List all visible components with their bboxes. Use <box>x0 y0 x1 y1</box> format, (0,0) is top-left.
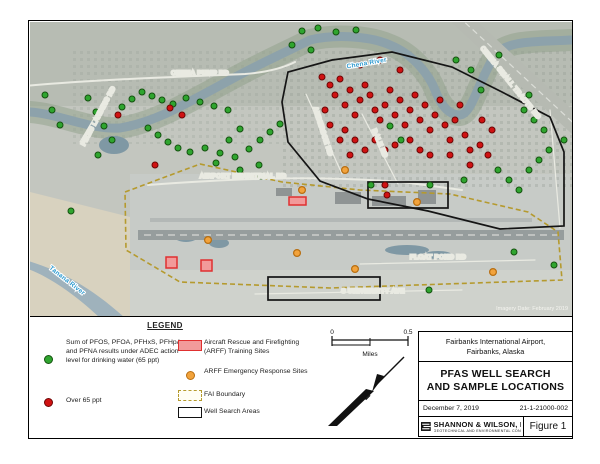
sample-under-level-marker <box>175 145 181 151</box>
map-label-road: CHENA PUMP RD <box>171 70 229 77</box>
sample-over-level-marker <box>377 117 383 123</box>
sample-over-level-marker <box>417 147 423 153</box>
north-arrow: N <box>322 352 410 432</box>
sample-under-level-marker <box>536 157 542 163</box>
well-search-swatch-icon <box>178 406 204 418</box>
map-canvas: CHENA PUMP RDChena RiverCHENA SMALL TRAC… <box>30 22 572 316</box>
sample-over-level-marker <box>437 97 443 103</box>
sample-over-level-marker <box>352 112 358 118</box>
orange-dot-icon <box>178 368 204 380</box>
location-line2: Fairbanks, Alaska <box>421 347 570 357</box>
sample-over-level-marker <box>327 82 333 88</box>
legend-item-arff-training: Aircraft Rescue and Firefighting (ARFF) … <box>178 339 322 357</box>
sample-over-level-marker <box>442 122 448 128</box>
sample-under-level-marker <box>49 107 55 113</box>
sample-under-level-marker <box>197 99 203 105</box>
arff-response-site-marker <box>414 199 421 206</box>
sample-over-level-marker <box>392 112 398 118</box>
sample-over-level-marker <box>485 152 491 158</box>
sample-over-level-marker <box>382 182 388 188</box>
sample-under-level-marker <box>495 167 501 173</box>
sample-under-level-marker <box>57 122 63 128</box>
sample-under-level-marker <box>277 121 283 127</box>
sample-under-level-marker <box>109 137 115 143</box>
green-dot-icon <box>40 339 66 364</box>
sample-under-level-marker <box>516 187 522 193</box>
sample-over-level-marker <box>452 117 458 123</box>
sample-under-level-marker <box>139 89 145 95</box>
sample-under-level-marker <box>308 47 314 53</box>
sample-over-level-marker <box>387 87 393 93</box>
sample-over-level-marker <box>447 152 453 158</box>
map-label-road: AIRPORT INDUSTRIAL RD <box>200 173 287 180</box>
arff-response-site-marker <box>352 266 359 273</box>
sample-under-level-marker <box>315 25 321 31</box>
sample-under-level-marker <box>232 154 238 160</box>
arff-training-site <box>201 260 212 271</box>
figure-title-line2: AND SAMPLE LOCATIONS <box>421 381 570 394</box>
sample-under-level-marker <box>299 28 305 34</box>
sample-over-level-marker <box>477 142 483 148</box>
sample-over-level-marker <box>342 102 348 108</box>
legend-item-fai-boundary: FAI Boundary <box>178 389 322 401</box>
sample-over-level-marker <box>352 137 358 143</box>
sample-under-level-marker <box>267 129 273 135</box>
sample-under-level-marker <box>237 126 243 132</box>
figure-date: December 7, 2019 <box>423 405 479 412</box>
sample-under-level-marker <box>183 95 189 101</box>
arff-training-site <box>166 257 177 268</box>
sample-over-level-marker <box>462 132 468 138</box>
sample-under-level-marker <box>453 57 459 63</box>
fai-boundary-swatch-icon <box>178 389 204 401</box>
sample-over-level-marker <box>115 112 121 118</box>
arff-training-swatch-icon <box>178 339 204 351</box>
sample-over-level-marker <box>467 147 473 153</box>
sample-over-level-marker <box>392 142 398 148</box>
sample-over-level-marker <box>347 152 353 158</box>
title-block-meta: December 7, 2019 21-1-21000-002 <box>419 401 572 416</box>
arff-response-site-marker <box>342 167 349 174</box>
company-text: SHANNON & WILSON, INC. GEOTECHNICAL AND … <box>434 420 521 433</box>
sample-over-level-marker <box>152 162 158 168</box>
company-tagline: GEOTECHNICAL AND ENVIRONMENTAL CONSULTAN… <box>434 429 521 433</box>
sample-under-level-marker <box>129 96 135 102</box>
sample-under-level-marker <box>561 137 567 143</box>
sample-under-level-marker <box>478 87 484 93</box>
sample-over-level-marker <box>427 152 433 158</box>
sample-under-level-marker <box>506 177 512 183</box>
map-area: CHENA PUMP RDChena RiverCHENA SMALL TRAC… <box>30 22 572 317</box>
sample-over-level-marker <box>407 137 413 143</box>
shannon-wilson-logo <box>421 420 432 433</box>
sample-under-level-marker <box>42 92 48 98</box>
sample-under-level-marker <box>468 67 474 73</box>
sample-over-level-marker <box>367 92 373 98</box>
sample-over-level-marker <box>332 92 338 98</box>
sample-under-level-marker <box>217 150 223 156</box>
project-location: Fairbanks International Airport, Fairban… <box>419 332 572 362</box>
sample-under-level-marker <box>187 149 193 155</box>
figure-title-line1: PFAS WELL SEARCH <box>421 368 570 381</box>
sample-over-level-marker <box>342 127 348 133</box>
sample-under-level-marker <box>426 287 432 293</box>
legend-item-under-level: Sum of PFOS, PFOA, PFHxS, PFHpA, and PFN… <box>40 339 184 365</box>
sample-over-level-marker <box>412 92 418 98</box>
sample-over-level-marker <box>327 122 333 128</box>
map-label-road: S UNIVERSITY AVE <box>341 288 405 295</box>
sample-over-level-marker <box>347 87 353 93</box>
sample-under-level-marker <box>165 139 171 145</box>
sample-over-level-marker <box>397 97 403 103</box>
sample-under-level-marker <box>159 97 165 103</box>
arff-response-site-marker <box>294 250 301 257</box>
sample-over-level-marker <box>362 82 368 88</box>
red-dot-icon <box>40 397 66 407</box>
sample-over-level-marker <box>372 107 378 113</box>
sample-under-level-marker <box>226 137 232 143</box>
sample-over-level-marker <box>322 107 328 113</box>
sample-under-level-marker <box>68 208 74 214</box>
sample-over-level-marker <box>319 74 325 80</box>
company-name: SHANNON & WILSON, INC. <box>434 420 521 429</box>
sample-under-level-marker <box>368 182 374 188</box>
sample-over-level-marker <box>467 162 473 168</box>
legend-item-arff-response: ARFF Emergency Response Sites <box>178 368 322 380</box>
sample-under-level-marker <box>496 52 502 58</box>
arff-response-site-marker <box>299 187 306 194</box>
sample-under-level-marker <box>551 262 557 268</box>
legend-item-well-search: Well Search Areas <box>178 406 322 418</box>
scale-left-label: 0 <box>330 329 334 336</box>
figure-number: Figure 1 <box>524 417 572 436</box>
legend-title: LEGEND <box>40 321 290 331</box>
sample-under-level-marker <box>387 123 393 129</box>
sample-over-level-marker <box>397 67 403 73</box>
sample-under-level-marker <box>145 125 151 131</box>
sample-over-level-marker <box>417 117 423 123</box>
sample-under-level-marker <box>85 95 91 101</box>
sample-over-level-marker <box>362 147 368 153</box>
sample-over-level-marker <box>447 137 453 143</box>
sample-under-level-marker <box>149 93 155 99</box>
sample-over-level-marker <box>457 102 463 108</box>
sample-over-level-marker <box>384 192 390 198</box>
arff-response-site-marker <box>205 237 212 244</box>
sample-under-level-marker <box>398 137 404 143</box>
map-label-road: FLOAT POND RD <box>410 254 466 261</box>
sample-under-level-marker <box>289 42 295 48</box>
sample-under-level-marker <box>211 103 217 109</box>
arff-response-site-marker <box>490 269 497 276</box>
sample-under-level-marker <box>333 29 339 35</box>
arff-training-site <box>289 197 306 205</box>
sample-under-level-marker <box>353 27 359 33</box>
sample-under-level-marker <box>526 167 532 173</box>
sample-under-level-marker <box>546 147 552 153</box>
sample-under-level-marker <box>213 160 219 166</box>
sample-under-level-marker <box>257 137 263 143</box>
sample-over-level-marker <box>167 105 173 111</box>
sample-under-level-marker <box>427 182 433 188</box>
location-line1: Fairbanks International Airport, <box>421 337 570 347</box>
sample-under-level-marker <box>101 123 107 129</box>
legend: LEGEND Sum of PFOS, PFOA, PFHxS, PFHpA, … <box>40 319 328 437</box>
sample-over-level-marker <box>422 102 428 108</box>
title-block-bottom: SHANNON & WILSON, INC. GEOTECHNICAL AND … <box>419 416 572 436</box>
sample-under-level-marker <box>155 132 161 138</box>
project-number: 21-1-21000-002 <box>520 405 568 412</box>
sample-under-level-marker <box>202 145 208 151</box>
sample-over-level-marker <box>427 127 433 133</box>
figure-title: PFAS WELL SEARCH AND SAMPLE LOCATIONS <box>419 362 572 401</box>
sample-under-level-marker <box>119 104 125 110</box>
title-block: Fairbanks International Airport, Fairban… <box>418 331 573 437</box>
sample-under-level-marker <box>511 249 517 255</box>
sample-over-level-marker <box>337 76 343 82</box>
sample-under-level-marker <box>256 162 262 168</box>
sample-over-level-marker <box>489 127 495 133</box>
sample-over-level-marker <box>402 122 408 128</box>
sample-under-level-marker <box>541 127 547 133</box>
company-cell: SHANNON & WILSON, INC. GEOTECHNICAL AND … <box>419 417 524 436</box>
sample-over-level-marker <box>337 137 343 143</box>
legend-item-over-level: Over 65 ppt <box>40 397 184 407</box>
sample-over-level-marker <box>382 102 388 108</box>
sample-under-level-marker <box>461 177 467 183</box>
sample-under-level-marker <box>246 146 252 152</box>
sample-over-level-marker <box>479 117 485 123</box>
map-label-credit: Imagery Date: February 2019 <box>496 306 568 312</box>
scale-right-label: 0.5 <box>403 329 412 336</box>
sample-over-level-marker <box>407 107 413 113</box>
sample-under-level-marker <box>225 107 231 113</box>
sample-over-level-marker <box>179 112 185 118</box>
sample-under-level-marker <box>95 152 101 158</box>
sample-over-level-marker <box>357 97 363 103</box>
sample-over-level-marker <box>432 112 438 118</box>
